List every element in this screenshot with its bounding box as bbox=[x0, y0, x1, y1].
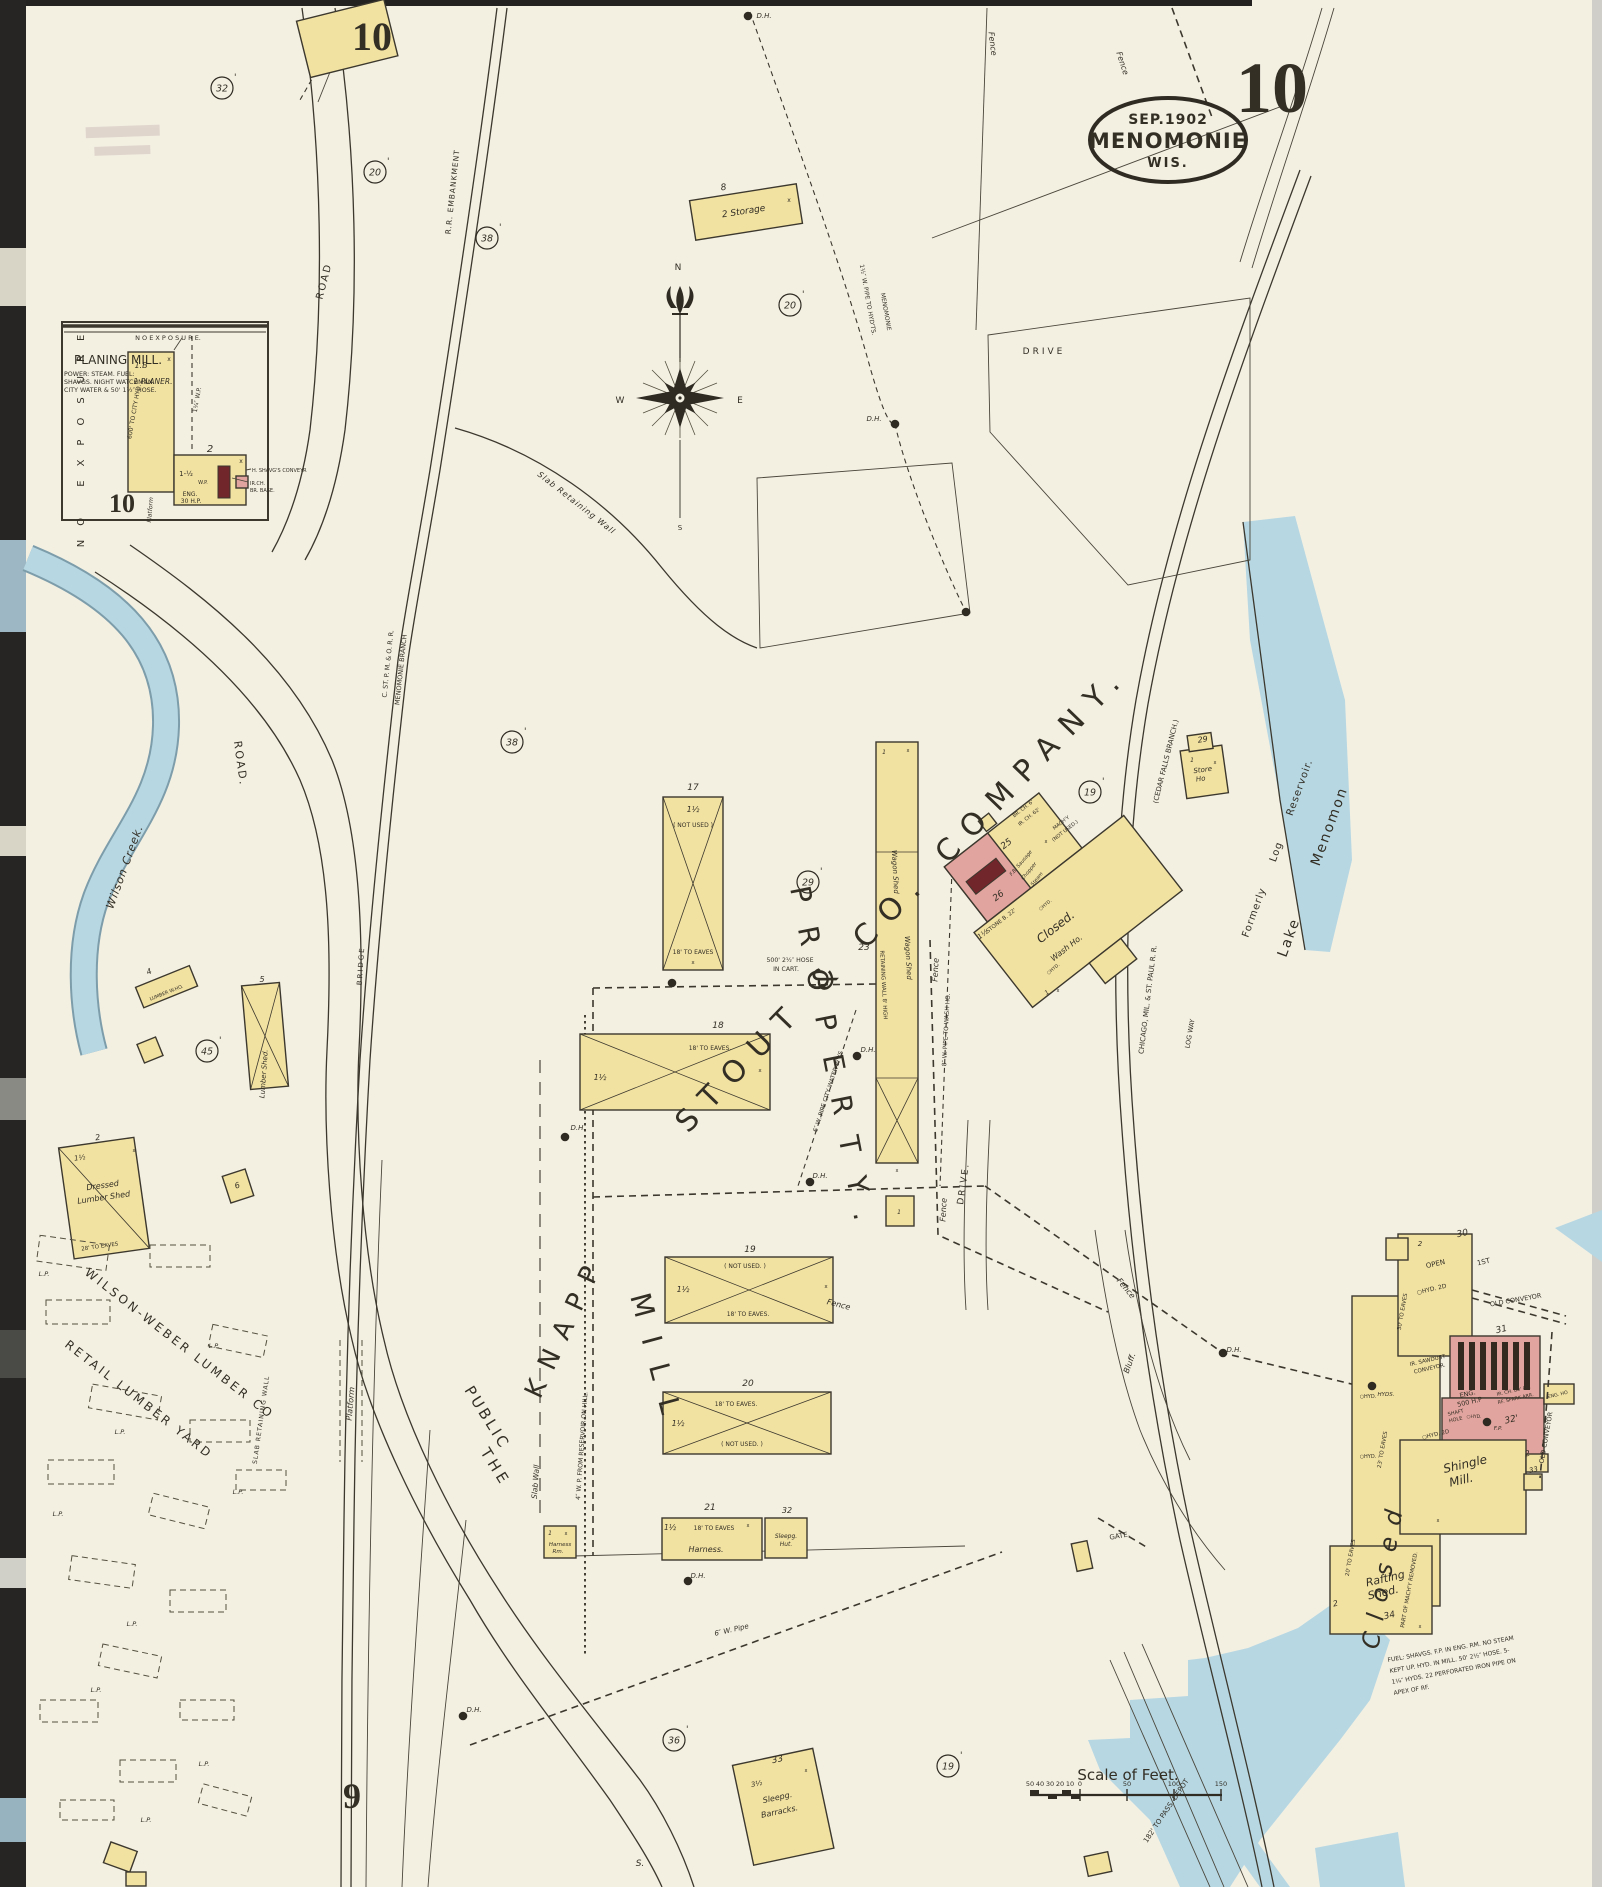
lp-9: L.P. bbox=[141, 1816, 152, 1824]
lp-8: L.P. bbox=[199, 1760, 210, 1768]
bluff: Bluff. bbox=[1122, 1352, 1138, 1375]
b17-stories: 1½ bbox=[687, 805, 700, 814]
inset-chimney-2: BR. BASE. bbox=[250, 488, 275, 494]
wagonshed-x2: x bbox=[896, 1168, 899, 1174]
compass-south: S bbox=[678, 524, 683, 532]
road-left: ROAD. bbox=[231, 740, 250, 787]
radius-19ft-a-value: 19 bbox=[1084, 788, 1096, 799]
wagonshed-1: 1 bbox=[882, 749, 886, 756]
hose-cart-2: IN CART. bbox=[773, 966, 799, 973]
pipe-6in: 6″ W. Pipe bbox=[714, 1622, 750, 1638]
b21-eaves: 18' TO EAVES bbox=[694, 1525, 735, 1532]
b20-stories: 1½ bbox=[672, 1419, 685, 1428]
fence-top-2: Fence bbox=[1114, 50, 1130, 76]
compass-north: N bbox=[675, 263, 682, 273]
railroad-right bbox=[1110, 8, 1334, 1887]
lp-1: L.P. bbox=[39, 1270, 50, 1278]
fence-mid-1: Fence bbox=[930, 958, 940, 982]
b20-eaves: 18' TO EAVES. bbox=[715, 1401, 758, 1408]
radius-32ft-value: 32 bbox=[216, 84, 228, 95]
public-road bbox=[95, 545, 694, 1887]
lp-7: L.P. bbox=[91, 1686, 102, 1694]
lp-5: L.P. bbox=[233, 1488, 244, 1496]
closed-hyd-1: ○HYD. bbox=[1360, 1394, 1377, 1400]
radius-20ft-a: 20' bbox=[364, 157, 389, 183]
inset-conveyor: H. SHAVG'S CONVEYR bbox=[252, 468, 307, 474]
hut32-number: 32 bbox=[782, 1506, 792, 1515]
b18-eaves: 18' TO EAVES. bbox=[689, 1045, 732, 1052]
scan-edge-top bbox=[26, 0, 1252, 6]
slab-wall: Slab Wall bbox=[530, 1463, 541, 1499]
fence-top-1: Fence bbox=[987, 31, 999, 56]
b29-number: 29 bbox=[1197, 734, 1208, 744]
inset-eng-2: 30 H.P. bbox=[181, 498, 202, 505]
closed-hyd-2: ○HYD. bbox=[1360, 1454, 1377, 1460]
inset-sheet-number: 10 bbox=[109, 489, 135, 518]
b19-number: 19 bbox=[744, 1245, 756, 1255]
compass-east: E bbox=[737, 396, 743, 406]
dh-label-3: D.H. bbox=[570, 1124, 585, 1132]
inset-platform: Platform bbox=[146, 497, 155, 523]
feet-tick: ' bbox=[234, 73, 236, 83]
lp-6: L.P. bbox=[127, 1620, 138, 1628]
radius-38ft-a-value: 38 bbox=[481, 234, 493, 245]
gate: GATE. bbox=[1109, 1530, 1131, 1541]
hydrant-dot bbox=[668, 979, 677, 988]
the-text: THE bbox=[476, 1444, 514, 1490]
public-text: PUBLIC bbox=[461, 1383, 514, 1453]
b17-note: ( NOT USED ) bbox=[673, 822, 713, 829]
inset-note-1: POWER: STEAM. FUEL: bbox=[64, 371, 135, 378]
b17-eaves: 18' TO EAVES bbox=[673, 949, 714, 956]
scale-number: 50 bbox=[1026, 1780, 1034, 1788]
inset-bldg2-number: 2 bbox=[207, 444, 213, 455]
scale-number: 20 bbox=[1056, 1780, 1064, 1788]
knapp: KNAPP bbox=[519, 1249, 612, 1403]
rr-branch-1: C. ST. P. M. & O. R. R. bbox=[380, 630, 395, 698]
b21-number: 21 bbox=[704, 1503, 715, 1513]
corner-mark: S. bbox=[636, 1859, 645, 1869]
building-shingle-mill bbox=[1400, 1440, 1526, 1534]
feet-tick: ' bbox=[802, 290, 804, 300]
dh-4: D.H. bbox=[860, 1046, 875, 1054]
radius-20ft-b: 20' bbox=[779, 290, 804, 316]
scale-number: 10 bbox=[1066, 1780, 1074, 1788]
feet-tick: ' bbox=[524, 727, 526, 737]
b2-stories: 1½ bbox=[74, 1153, 86, 1163]
storage-number: 8 bbox=[720, 183, 727, 194]
b2-number: 2 bbox=[95, 1133, 101, 1143]
closed-x: x bbox=[1437, 1518, 1440, 1524]
storage-x: x bbox=[787, 197, 791, 204]
adjacent-sheet-number-top: 10 bbox=[352, 14, 392, 59]
b18-number: 18 bbox=[712, 1021, 724, 1031]
b19-eaves: 18' TO EAVES. bbox=[727, 1311, 770, 1318]
drive-top: DRIVE bbox=[1023, 347, 1066, 357]
slab-retaining-wall-top: Slab Retaining Wall bbox=[536, 470, 617, 536]
inset-pipe-label: 1¼″ W.P. bbox=[192, 386, 203, 412]
lp-2: L.P. bbox=[209, 1342, 220, 1350]
b18-stories: 1½ bbox=[594, 1073, 607, 1082]
feet-tick: ' bbox=[499, 223, 501, 233]
hydrant-dot bbox=[1483, 1418, 1492, 1427]
feet-tick: ' bbox=[960, 1751, 962, 1761]
harness-rm-2: Harness bbox=[549, 1542, 572, 1548]
b30-annex: 2 bbox=[1418, 1240, 1423, 1248]
bridge: BRIDGE bbox=[356, 946, 367, 985]
b26-annex-x: x bbox=[1057, 988, 1060, 994]
b21-x: x bbox=[747, 1523, 750, 1529]
badge-city: MENOMONIE bbox=[1089, 129, 1247, 153]
log-way: LOG WAY bbox=[1184, 1018, 1197, 1049]
dh-5: D.H. bbox=[812, 1172, 827, 1180]
pipe-hydrants-2: MENOMONIE bbox=[879, 292, 893, 331]
sheet-number: 10 bbox=[1236, 48, 1308, 128]
scan-edge-right bbox=[1592, 0, 1602, 1887]
dh-8: D.H. bbox=[466, 1706, 481, 1714]
inset-title: PLANING MILL. bbox=[74, 353, 162, 367]
dh-6: D.H. bbox=[1226, 1346, 1241, 1354]
fence-pipe-lines bbox=[300, 12, 1445, 1745]
inset-x-2: x bbox=[239, 458, 243, 465]
hyds-label: HYDS. bbox=[1378, 1392, 1395, 1398]
dh-label-top: D.H. bbox=[756, 12, 771, 20]
dh-label-2: D.H. bbox=[866, 415, 881, 423]
b30-1st: 1ST bbox=[1476, 1257, 1491, 1268]
b21-use: Harness. bbox=[688, 1545, 723, 1554]
lp-3: L.P. bbox=[115, 1428, 126, 1436]
rafting-x: x bbox=[1419, 1624, 1422, 1630]
hose-cart-1: 500' 2½″ HOSE bbox=[766, 956, 813, 964]
feet-tick: ' bbox=[387, 157, 389, 167]
building-4-lumber-warehouse bbox=[136, 966, 198, 1008]
water-layer bbox=[28, 516, 1602, 1887]
sanborn-map-sheet: 5040302010050100150 32'20'38'20'38'29'45… bbox=[0, 0, 1602, 1887]
b31-hyd: ○HYD. bbox=[1467, 1414, 1482, 1420]
pond-corner-2 bbox=[1315, 1832, 1405, 1887]
radius-19ft-b: 19' bbox=[937, 1751, 962, 1777]
drive-right: DRIVE. bbox=[956, 1162, 972, 1206]
pond-corner-1 bbox=[1555, 1210, 1602, 1262]
radius-36ft: 36' bbox=[663, 1725, 688, 1751]
dh-7: D.H. bbox=[690, 1572, 705, 1580]
inset-bldg1-stories: 1.B bbox=[134, 361, 147, 370]
radius-19ft-b-value: 19 bbox=[942, 1762, 954, 1773]
hut32-1: Sleepg. bbox=[775, 1533, 797, 1540]
radius-19ft-a: 19' bbox=[1079, 777, 1104, 803]
b31-number: 31 bbox=[1495, 1324, 1508, 1336]
pipe-washho: 8″ W. PIPE TO WASH HO. bbox=[941, 993, 952, 1066]
hydrant-dot bbox=[891, 420, 900, 429]
b33-x: x bbox=[805, 1768, 808, 1774]
harness-rm-x: x bbox=[565, 1531, 568, 1537]
pipe-reservoir: 4″ W. P. FROM RESERVOIR ON HILL. bbox=[575, 1392, 590, 1500]
radius-36ft-value: 36 bbox=[668, 1736, 680, 1747]
hydrant-dot bbox=[1368, 1382, 1377, 1391]
b21-stories: 1½ bbox=[664, 1523, 677, 1532]
hut32-2: Hut. bbox=[780, 1541, 793, 1548]
platform-label: Platform bbox=[345, 1386, 357, 1421]
inset-no-exposure: N O E X P O S U R E. bbox=[135, 334, 201, 342]
scale-number: 150 bbox=[1215, 1780, 1227, 1788]
wagonshed-annex: 1 bbox=[897, 1209, 901, 1216]
fence-mid-2: Fence bbox=[938, 1198, 948, 1222]
badge-date: SEP.1902 bbox=[1128, 112, 1208, 128]
wagonshed-x1: x bbox=[907, 748, 910, 754]
b20-number: 20 bbox=[742, 1379, 754, 1389]
feet-tick: ' bbox=[686, 1725, 688, 1735]
feet-tick: ' bbox=[219, 1036, 221, 1046]
b20-note: ( NOT USED. ) bbox=[721, 1441, 763, 1448]
inset-boiler bbox=[218, 466, 230, 498]
radius-45ft-value: 45 bbox=[201, 1047, 213, 1058]
feet-tick: ' bbox=[820, 867, 822, 877]
b17-number: 17 bbox=[687, 783, 699, 793]
b5-number: 5 bbox=[259, 975, 264, 984]
inset-note-3: CITY WATER & 50' 1½″ HOSE. bbox=[64, 386, 157, 394]
planing-mill-inset bbox=[62, 322, 268, 520]
radius-38ft-a: 38' bbox=[476, 223, 501, 249]
wilson-weber: WILSON-WEBER LUMBER CO bbox=[82, 1265, 277, 1422]
b19-stories: 1½ bbox=[677, 1285, 690, 1294]
mill-note-4: APEX OF RF. bbox=[1393, 1684, 1430, 1697]
b29-stories: 1 bbox=[1190, 757, 1194, 764]
inset-eng-1: ENG. bbox=[183, 491, 198, 498]
lp-4: L.P. bbox=[53, 1510, 64, 1518]
b2-x: x bbox=[133, 1148, 136, 1154]
map-canvas: 5040302010050100150 32'20'38'20'38'29'45… bbox=[0, 0, 1602, 1887]
scan-edge-left bbox=[0, 0, 26, 1887]
bottom-sheet-number: 9 bbox=[343, 1776, 361, 1816]
compass-rose bbox=[636, 286, 724, 518]
compass-west: W bbox=[616, 396, 625, 406]
hydrant-dot bbox=[744, 12, 753, 21]
harness-rm-3: Rm. bbox=[553, 1549, 564, 1555]
railroad-right-2: (CEDAR FALLS BRANCH.) bbox=[1152, 718, 1181, 804]
b19-note: ( NOT USED. ) bbox=[724, 1263, 766, 1270]
ghost-stamp bbox=[86, 125, 161, 157]
inset-x-1: x bbox=[167, 356, 171, 363]
radius-38ft-b-value: 38 bbox=[506, 738, 518, 749]
radius-20ft-a-value: 20 bbox=[369, 168, 381, 179]
rr-embankment: R.R. EMBANKMENT bbox=[444, 149, 462, 235]
radius-38ft-b: 38' bbox=[501, 727, 526, 753]
hydrant-dot bbox=[561, 1133, 570, 1142]
radius-45ft: 45' bbox=[196, 1036, 221, 1062]
radius-20ft-b-value: 20 bbox=[784, 301, 796, 312]
inset-bldg2-stories: 1-½ bbox=[179, 470, 193, 478]
radius-32ft: 32' bbox=[211, 73, 236, 99]
b29-use-2: Ho bbox=[1195, 774, 1206, 783]
road-top: ROAD bbox=[314, 262, 334, 301]
feet-tick: ' bbox=[1102, 777, 1104, 787]
railroad-right-1: CHICAGO, MIL. & ST. PAUL R. R. bbox=[1137, 945, 1158, 1055]
b25-x: x bbox=[1045, 839, 1048, 845]
b29-x: x bbox=[1214, 760, 1217, 766]
scale-title: Scale of Feet. bbox=[1077, 1766, 1178, 1784]
road-top-left bbox=[272, 8, 354, 560]
wagonshed-number: 23 bbox=[858, 943, 870, 953]
circled-measurements: 32'20'38'20'38'29'45'19'36'19' bbox=[196, 73, 1104, 1777]
inset-chimney-1: IR.CH. bbox=[250, 481, 266, 487]
b31-fp: F.P. bbox=[1494, 1426, 1503, 1432]
hydrant-dot bbox=[962, 608, 971, 617]
b4-number: 4 bbox=[145, 967, 153, 977]
badge-state: WIS. bbox=[1147, 156, 1188, 171]
inset-wp: W.P. bbox=[198, 480, 208, 486]
scale-number: 30 bbox=[1046, 1780, 1054, 1788]
scale-number: 40 bbox=[1036, 1780, 1044, 1788]
harness-rm-1: 1 bbox=[548, 1530, 552, 1537]
old-conveyor-1: OLD CONVEYOR bbox=[1489, 1291, 1542, 1308]
pipe-hydrants-1: 1½″ W. PIPE TO HYD'TS. bbox=[858, 264, 877, 336]
